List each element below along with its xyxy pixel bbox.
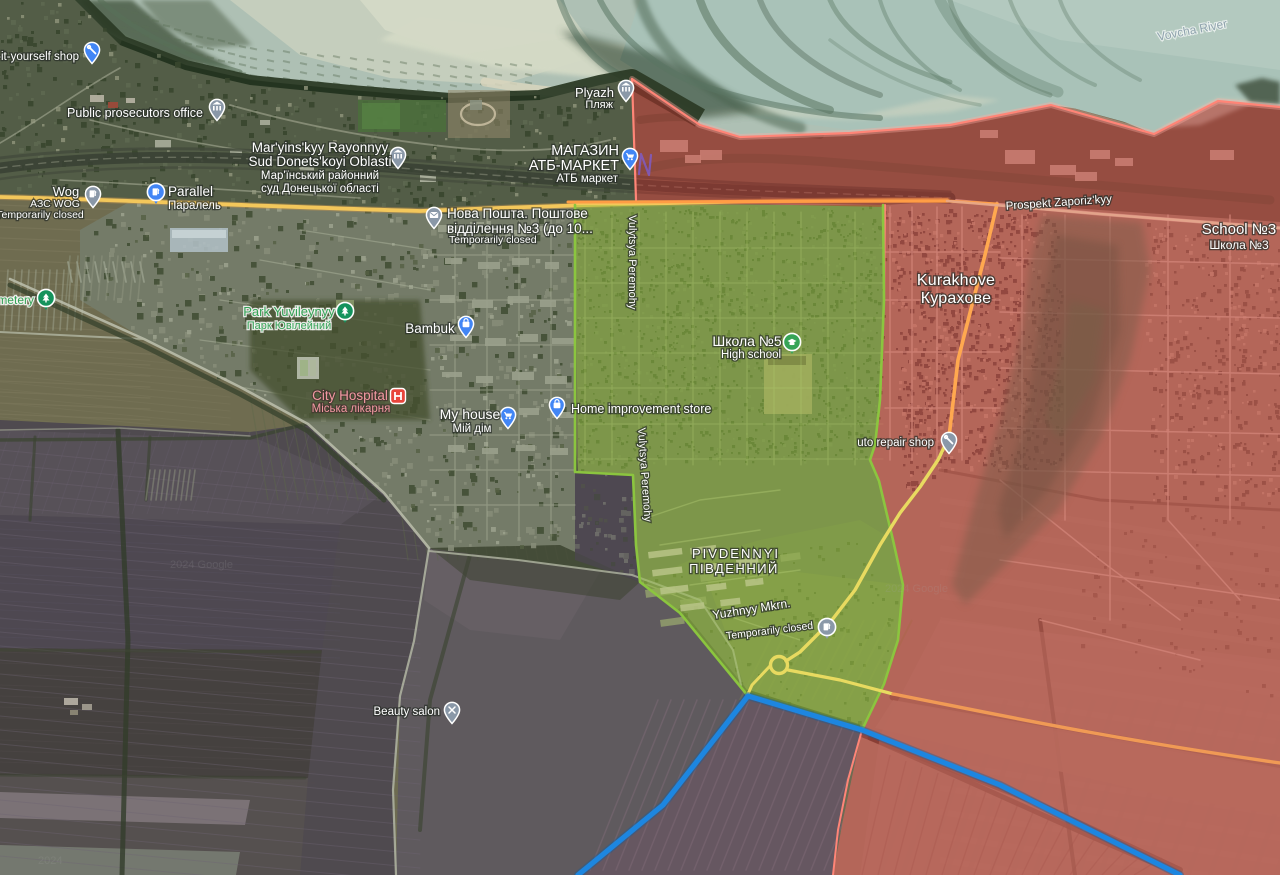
svg-text:Нова Пошта. Поштове: Нова Пошта. Поштове	[447, 206, 588, 221]
svg-text:emetery: emetery	[0, 293, 34, 307]
svg-text:Пляж: Пляж	[585, 99, 613, 111]
svg-text:2024 Google: 2024 Google	[885, 583, 948, 595]
svg-text:Wog: Wog	[53, 184, 80, 199]
svg-text:Парк Ювілейний: Парк Ювілейний	[247, 320, 331, 332]
svg-text:uto repair shop: uto repair shop	[857, 437, 934, 449]
svg-text:Parallel: Parallel	[168, 184, 213, 199]
svg-text:Міська лікарня: Міська лікарня	[312, 403, 391, 415]
svg-text:АТБ-МАРКЕТ: АТБ-МАРКЕТ	[529, 158, 619, 174]
svg-text:My house: My house	[440, 406, 501, 422]
svg-text:Mar'yins'kyy Rayonnyy: Mar'yins'kyy Rayonnyy	[252, 140, 389, 155]
svg-text:Мій дім: Мій дім	[453, 423, 492, 435]
svg-text:High school: High school	[721, 349, 781, 361]
svg-text:Plyazh: Plyazh	[575, 85, 614, 100]
svg-text:2024 Google: 2024 Google	[170, 559, 233, 571]
svg-text:2024: 2024	[38, 855, 62, 867]
svg-text:Sud Donets'koyi Oblasti: Sud Donets'koyi Oblasti	[249, 154, 392, 169]
svg-text:School №3: School №3	[1202, 221, 1276, 238]
svg-text:City Hospital: City Hospital	[312, 388, 388, 403]
svg-text:Vulytsya Peremohy: Vulytsya Peremohy	[626, 215, 638, 310]
svg-text:суд Донецької області: суд Донецької області	[261, 183, 379, 195]
svg-text:Temporarily closed: Temporarily closed	[0, 209, 84, 221]
svg-text:o-it-yourself shop: o-it-yourself shop	[0, 51, 79, 63]
svg-text:Temporarily closed: Temporarily closed	[449, 234, 537, 246]
svg-text:Public prosecutors office: Public prosecutors office	[67, 106, 203, 120]
svg-text:Школа №3: Школа №3	[1209, 238, 1269, 252]
svg-text:Kurakhove: Kurakhove	[917, 272, 995, 289]
svg-text:Home improvement store: Home improvement store	[571, 402, 711, 416]
svg-text:Школа №5: Школа №5	[712, 333, 781, 349]
svg-text:PIVDENNYI: PIVDENNYI	[692, 546, 780, 561]
svg-text:Паралель: Паралель	[168, 200, 221, 212]
svg-text:ПІВДЕННИЙ: ПІВДЕННИЙ	[689, 561, 779, 576]
svg-text:Bambuk: Bambuk	[405, 321, 455, 336]
svg-text:МАГАЗИН: МАГАЗИН	[551, 143, 619, 159]
svg-text:Мар'їнський районний: Мар'їнський районний	[261, 170, 379, 182]
svg-text:АТБ маркет: АТБ маркет	[556, 173, 618, 185]
svg-text:Park Yuvileynyy: Park Yuvileynyy	[243, 304, 335, 319]
svg-text:Курахове: Курахове	[921, 290, 991, 307]
svg-text:Beauty salon: Beauty salon	[374, 706, 441, 718]
